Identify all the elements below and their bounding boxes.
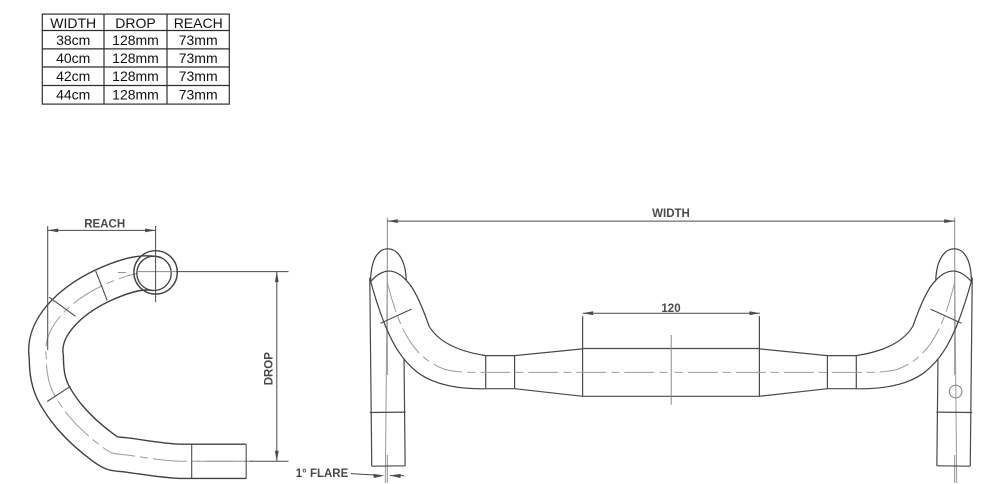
svg-text:73mm: 73mm [179, 50, 218, 66]
svg-text:DROP: DROP [115, 15, 155, 31]
svg-text:44cm: 44cm [56, 87, 90, 103]
svg-text:73mm: 73mm [179, 32, 218, 48]
svg-text:REACH: REACH [174, 15, 223, 31]
svg-text:WIDTH: WIDTH [50, 15, 96, 31]
svg-text:38cm: 38cm [56, 32, 90, 48]
svg-text:40cm: 40cm [56, 50, 90, 66]
svg-text:73mm: 73mm [179, 87, 218, 103]
svg-text:REACH: REACH [84, 219, 125, 231]
svg-text:128mm: 128mm [112, 32, 159, 48]
svg-text:120: 120 [661, 303, 680, 315]
svg-text:128mm: 128mm [112, 50, 159, 66]
svg-text:128mm: 128mm [112, 87, 159, 103]
svg-text:DROP: DROP [264, 352, 276, 386]
svg-text:73mm: 73mm [179, 68, 218, 84]
svg-text:42cm: 42cm [56, 68, 90, 84]
svg-text:1° FLARE: 1° FLARE [296, 468, 349, 480]
svg-text:128mm: 128mm [112, 68, 159, 84]
svg-text:WIDTH: WIDTH [652, 208, 690, 220]
